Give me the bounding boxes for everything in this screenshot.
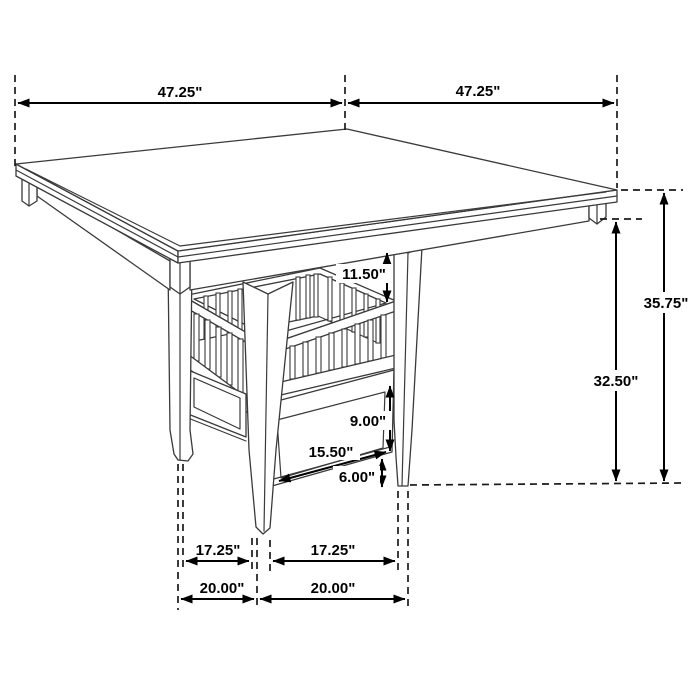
slat	[227, 333, 232, 385]
dim-label-drawer-width: 15.50"	[309, 444, 354, 461]
dim-label-feet-outer-left: 20.00"	[200, 580, 245, 597]
dim-top-width-right: 47.25"	[348, 83, 614, 103]
dim-label-feet-outer-right: 20.00"	[311, 580, 356, 597]
slat	[205, 320, 210, 369]
slat	[314, 274, 318, 317]
dim-overall-height: 35.75"	[638, 193, 693, 481]
slat	[303, 342, 308, 376]
dim-label-drawer-height: 9.00"	[350, 413, 386, 430]
slat	[368, 320, 373, 361]
slat	[316, 337, 321, 373]
dim-label-feet-inner-left: 17.25"	[196, 542, 241, 559]
slat	[381, 315, 386, 358]
dim-top-width-left: 47.25"	[18, 84, 342, 103]
dim-feet-outer-left: 20.00"	[181, 580, 254, 599]
dimension-diagram-canvas: 47.25" 47.25" 35.75" 32.50" 11.50"	[0, 0, 700, 700]
dim-label-bottom-clearance: 6.00"	[339, 469, 375, 486]
dim-label-top-width-right: 47.25"	[456, 83, 501, 100]
slat	[342, 329, 347, 367]
dim-feet-inner-right: 17.25"	[273, 542, 395, 561]
dimension-diagram: 47.25" 47.25" 35.75" 32.50" 11.50"	[0, 0, 700, 700]
slat	[238, 289, 242, 332]
slat	[194, 314, 199, 361]
dim-feet-inner-left: 17.25"	[186, 542, 249, 561]
extension-line	[410, 483, 684, 485]
slat	[296, 277, 300, 320]
dim-label-top-width-left: 47.25"	[158, 84, 203, 101]
slat	[355, 324, 360, 364]
dim-label-feet-inner-right: 17.25"	[311, 542, 356, 559]
slat	[290, 346, 295, 379]
slat	[329, 333, 334, 370]
right-leg	[394, 247, 422, 486]
slat	[328, 277, 332, 321]
slat	[216, 327, 221, 377]
dim-feet-outer-right: 20.00"	[260, 580, 405, 599]
slat	[376, 299, 380, 343]
slat	[306, 275, 310, 318]
dim-label-floor-to-apron: 32.50"	[594, 373, 639, 390]
furniture-drawing	[16, 129, 617, 534]
slat	[238, 339, 243, 393]
dim-label-apron-to-shelf: 11.50"	[342, 266, 386, 283]
dim-label-overall-height: 35.75"	[644, 295, 689, 312]
dim-floor-to-apron: 32.50"	[589, 222, 644, 481]
